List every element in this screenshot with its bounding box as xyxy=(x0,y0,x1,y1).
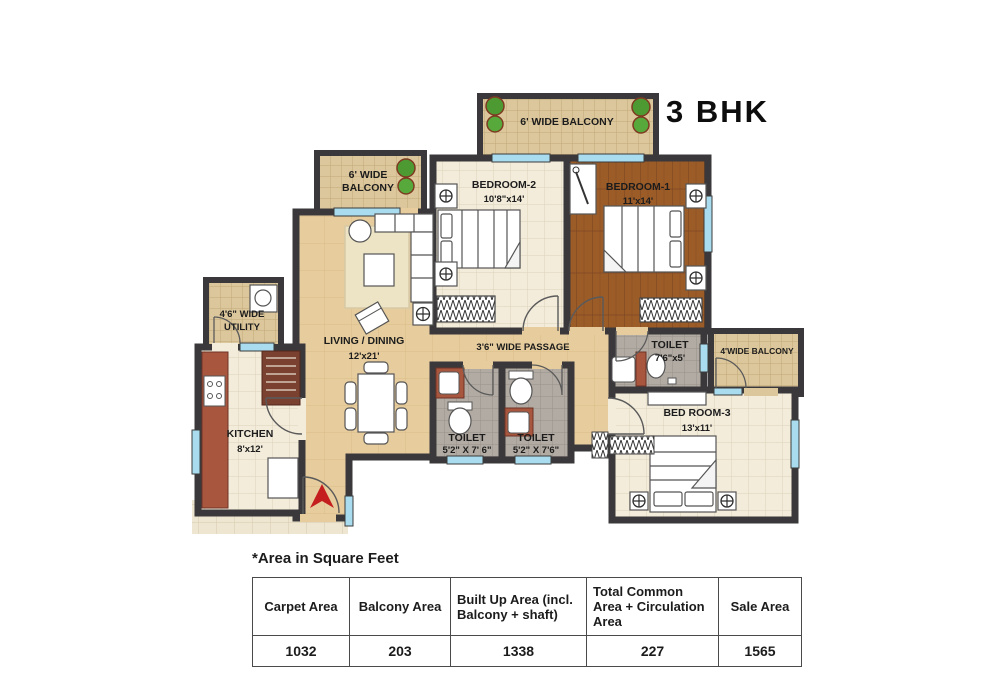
bedroom-2-wardrobe xyxy=(437,296,495,322)
bedroom-3-dresser xyxy=(648,392,706,405)
kitchen-label: KITCHEN xyxy=(227,428,274,440)
balcony-right-floor xyxy=(711,331,801,394)
value-carpet-area: 1032 xyxy=(253,636,350,667)
toilet-2-label: TOILET xyxy=(517,432,555,444)
balcony-top-label: 6' WIDE BALCONY xyxy=(520,116,614,128)
balcony-right-label: 4'WIDE BALCONY xyxy=(720,346,794,356)
bedroom-3-dims: 13'x11' xyxy=(682,423,712,434)
toilet-icon xyxy=(449,408,471,434)
area-table-header-row: Carpet Area Balcony Area Built Up Area (… xyxy=(253,578,802,636)
value-sale-area: 1565 xyxy=(719,636,802,667)
kitchen-sink-icon xyxy=(204,376,225,406)
page-title: 3 BHK xyxy=(666,94,769,130)
header-total-common-area: Total Common Area + Circulation Area xyxy=(587,578,719,636)
value-total-common-area: 227 xyxy=(587,636,719,667)
living-lamp xyxy=(413,303,433,325)
sink-icon xyxy=(508,412,529,433)
bedroom-3-wardrobe xyxy=(592,432,654,458)
value-balcony-area: 203 xyxy=(350,636,451,667)
passage-label: 3'6" WIDE PASSAGE xyxy=(476,342,569,353)
utility-label-2: UTILITY xyxy=(224,322,261,333)
sink-icon xyxy=(439,372,459,394)
area-table-value-row: 1032 203 1338 227 1565 xyxy=(253,636,802,667)
living-dining-label: LIVING / DINING xyxy=(324,335,405,347)
header-carpet-area: Carpet Area xyxy=(253,578,350,636)
area-table: Carpet Area Balcony Area Built Up Area (… xyxy=(252,577,802,667)
balcony-left-label-1: 6' WIDE xyxy=(349,169,388,181)
toilet-2-dims: 5'2" X 7'6" xyxy=(513,445,559,456)
balcony-left-label-2: BALCONY xyxy=(342,182,394,194)
bedroom-2-label: BEDROOM-2 xyxy=(472,179,536,191)
bedroom-1-dims: 11'x14' xyxy=(623,196,653,207)
header-sale-area: Sale Area xyxy=(719,578,802,636)
side-table-icon xyxy=(349,220,371,242)
coffee-table-icon xyxy=(364,254,394,286)
kitchen-fridge-icon xyxy=(268,458,298,498)
toilet-1-dims: 5'2" X 7' 6" xyxy=(443,445,492,456)
washing-machine-icon xyxy=(250,285,277,312)
toilet-icon xyxy=(510,378,532,404)
bedroom-3-bed-icon xyxy=(650,436,716,512)
area-note: *Area in Square Feet xyxy=(252,550,399,567)
toilet-master-label: TOILET xyxy=(651,339,689,351)
header-balcony-area: Balcony Area xyxy=(350,578,451,636)
value-built-up-area: 1338 xyxy=(451,636,587,667)
bedroom-1-bed-icon xyxy=(604,206,684,272)
bedroom-1-wardrobe xyxy=(640,298,702,322)
bedroom-2-bed-icon xyxy=(438,210,520,268)
toilet-master-dims: 7'6"x5' xyxy=(655,353,685,364)
bedroom-3-label: BED ROOM-3 xyxy=(663,407,730,419)
header-built-up-area: Built Up Area (incl. Balcony + shaft) xyxy=(451,578,587,636)
living-dining-dims: 12'x21' xyxy=(349,351,380,362)
bedroom-2-dims: 10'8"x14' xyxy=(484,194,525,205)
toilet-1-label: TOILET xyxy=(448,432,486,444)
utility-label-1: 4'6" WIDE xyxy=(220,309,265,320)
kitchen-dims: 8'x12' xyxy=(237,444,263,455)
bedroom-1-desk xyxy=(570,164,596,214)
floor-plan-page: 6' WIDE BALCONY 6' WIDE BALCONY 4'WIDE B… xyxy=(0,0,1000,700)
bedroom-1-label: BEDROOM-1 xyxy=(606,181,670,193)
floor-plan: 6' WIDE BALCONY 6' WIDE BALCONY 4'WIDE B… xyxy=(0,0,1000,545)
